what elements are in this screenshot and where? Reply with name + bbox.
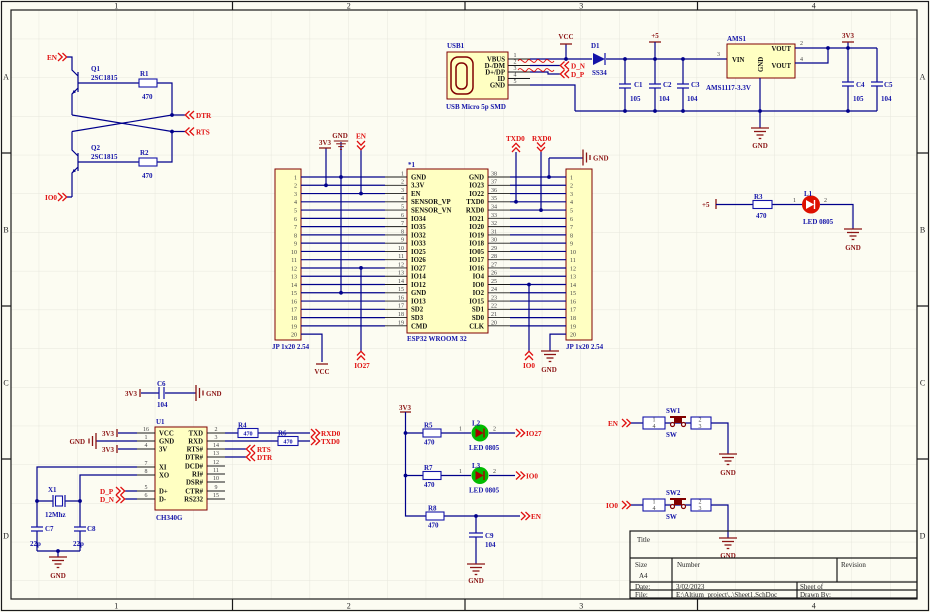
esp32-pin-name: SD2 xyxy=(411,307,424,314)
ams-vout1: VOUT xyxy=(771,46,791,53)
esp32-pin-name: SD0 xyxy=(472,315,485,322)
u1-pin-name: RXD xyxy=(188,438,203,445)
esp32-pin-number: 8 xyxy=(401,229,404,235)
drawn-by-label: Drawn By: xyxy=(800,591,831,599)
u1-pin-name: DCD# xyxy=(185,463,204,470)
resistor-r5[interactable] xyxy=(423,429,441,437)
esp32-pin-number: 28 xyxy=(491,254,497,260)
u1-pin-number: 15 xyxy=(213,493,219,499)
header-pin-number: 16 xyxy=(291,299,297,305)
v33-label: 3V3 xyxy=(399,404,412,412)
ams-pin3: 3 xyxy=(717,52,720,58)
sw-pin: 2 xyxy=(699,500,702,506)
esp32-pin-number: 35 xyxy=(491,196,497,202)
esp32-pin-number: 6 xyxy=(401,213,404,219)
port-rts[interactable]: RTS xyxy=(196,129,210,137)
esp32-pin-number: 27 xyxy=(491,262,497,268)
header-pin-number: 5 xyxy=(570,208,573,214)
schematic-canvas: 11223344AABBCCDD EN IO0 Q1 2SC1815 R1 47… xyxy=(0,0,930,612)
u1-pin-number: 11 xyxy=(213,468,219,474)
date-value: 3/02/2023 xyxy=(676,583,705,591)
header-pin-number: 1 xyxy=(294,175,297,181)
r4-ref: R4 xyxy=(238,422,247,430)
u1-pin-number: 3 xyxy=(215,435,218,441)
esp32-pin-name: GND xyxy=(469,174,484,181)
border-number-bottom: 1 xyxy=(114,602,118,611)
esp32-designator: *1 xyxy=(408,161,416,169)
esp32-pin-number: 11 xyxy=(398,254,404,260)
port-io0[interactable]: IO0 xyxy=(45,194,57,202)
c4-value: 105 xyxy=(853,95,864,103)
u1-pin-number: 14 xyxy=(213,443,219,449)
l1-part: LED 0805 xyxy=(803,218,834,226)
c7-value: 22p xyxy=(30,540,41,548)
header-pin-number: 12 xyxy=(570,266,576,272)
esp32-pin-name: IO20 xyxy=(469,224,484,231)
esp32-pin-name: IO4 xyxy=(473,274,485,281)
header-pin-number: 13 xyxy=(291,275,297,281)
r5-ref: R5 xyxy=(424,422,433,430)
header-pin-number: 16 xyxy=(570,299,576,305)
r2-ref: R2 xyxy=(140,149,149,157)
header-pin-number: 18 xyxy=(570,316,576,322)
v33-label: 3V3 xyxy=(102,430,115,438)
esp32-pin-number: 4 xyxy=(401,196,404,202)
esp32-pin-number: 21 xyxy=(491,312,497,318)
sw1-part: SW xyxy=(666,431,677,439)
border-letter-right: B xyxy=(920,226,925,235)
border-number-top: 1 xyxy=(114,2,118,11)
u1-pin-number: 6 xyxy=(145,493,148,499)
esp32-pin-number: 24 xyxy=(491,287,497,293)
u1-pin-number: 7 xyxy=(145,461,148,467)
esp32-pin-number: 1 xyxy=(401,171,404,177)
gnd-label: GND xyxy=(206,390,222,398)
ams-vout2: VOUT xyxy=(771,63,791,70)
border-number-bottom: 3 xyxy=(579,602,583,611)
v33-label: 3V3 xyxy=(842,32,855,40)
port-io27[interactable]: IO27 xyxy=(526,430,542,438)
port-rts[interactable]: RTS xyxy=(257,446,271,454)
c9-ref: C9 xyxy=(485,532,494,540)
border-letter-left: D xyxy=(3,532,9,541)
schematic-sheet: 11223344AABBCCDD EN IO0 Q1 2SC1815 R1 47… xyxy=(0,0,930,612)
esp32-pin-name: EN xyxy=(411,191,421,198)
esp32-pin-name: IO19 xyxy=(469,232,484,239)
l2-part: LED 0805 xyxy=(469,444,500,452)
header-pin-number: 20 xyxy=(570,333,576,339)
port-dn[interactable]: D_N xyxy=(100,496,115,504)
ams-part: AMS1117-3.3V xyxy=(706,84,751,92)
sw2-part: SW xyxy=(666,513,677,521)
esp32-pin-number: 13 xyxy=(398,271,404,277)
header-pin-number: 15 xyxy=(291,291,297,297)
u1-pin-number: 12 xyxy=(213,460,219,466)
r6-value: 470 xyxy=(283,439,292,446)
header-right-label: JP 1x20 2.54 xyxy=(566,343,604,351)
border-letter-left: A xyxy=(3,73,9,82)
l2-ref: L2 xyxy=(472,420,481,428)
header-pin-number: 20 xyxy=(291,333,297,339)
esp32-pin-number: 3 xyxy=(401,188,404,194)
esp32-pin-number: 33 xyxy=(491,213,497,219)
c7-ref: C7 xyxy=(45,525,54,533)
port-en[interactable]: EN xyxy=(356,133,367,141)
ams-pin2: 2 xyxy=(800,41,803,47)
c4-ref: C4 xyxy=(856,81,865,89)
port-dp[interactable]: D_P xyxy=(571,71,585,79)
esp32-pin-number: 20 xyxy=(491,320,497,326)
esp32-pin-number: 36 xyxy=(491,188,497,194)
u1-pin-number: 2 xyxy=(215,427,218,433)
esp32-pin-number: 26 xyxy=(491,271,497,277)
header-pin-number: 9 xyxy=(294,242,297,248)
header-pin-number: 2 xyxy=(294,184,297,190)
sw1-ref: SW1 xyxy=(666,407,681,415)
usb-pin-number: 4 xyxy=(514,73,517,79)
r1-value: 470 xyxy=(142,93,153,101)
esp32-pin-number: 37 xyxy=(491,180,497,186)
r4-value: 470 xyxy=(243,431,252,438)
header-pin-number: 7 xyxy=(294,225,297,231)
esp32-pin-name: IO15 xyxy=(469,298,484,305)
border-number-top: 2 xyxy=(347,2,351,11)
esp32-pin-number: 29 xyxy=(491,246,497,252)
size-label: Size xyxy=(635,561,647,569)
header-pin-number: 3 xyxy=(294,192,297,198)
resistor-r2[interactable] xyxy=(139,158,157,166)
esp32-pin-name: IO12 xyxy=(411,282,426,289)
port-en[interactable]: EN xyxy=(531,513,542,521)
esp32-pin-number: 9 xyxy=(401,238,404,244)
esp32-pin-name: IO2 xyxy=(473,290,485,297)
usb-part: USB Micro 5p SMD xyxy=(446,103,506,111)
header-pin-number: 10 xyxy=(570,250,576,256)
header-pin-number: 19 xyxy=(291,324,297,330)
esp32-pin-name: IO23 xyxy=(469,183,484,190)
gnd-label: GND xyxy=(50,572,66,580)
port-rxd0[interactable]: RXD0 xyxy=(321,430,341,438)
port-en[interactable]: EN xyxy=(47,54,58,62)
port-txd0[interactable]: TXD0 xyxy=(321,438,340,446)
esp32-pin-number: 2 xyxy=(401,180,404,186)
esp32-pin-name: IO35 xyxy=(411,224,426,231)
esp32-pin-name: IO0 xyxy=(473,282,485,289)
revision-label: Revision xyxy=(841,561,866,569)
d1-ref: D1 xyxy=(591,42,600,50)
esp32-pin-name: TXD0 xyxy=(466,199,484,206)
u1-pin-name: D+ xyxy=(159,488,168,495)
header-pin-number: 11 xyxy=(570,258,576,264)
sw2-ref: SW2 xyxy=(666,489,681,497)
gnd-label: GND xyxy=(468,577,484,585)
ams-ref: AMS1 xyxy=(727,35,747,43)
border-letter-left: C xyxy=(3,379,8,388)
u1-pin-name: XO xyxy=(159,472,169,479)
esp32-part: ESP32 WROOM 32 xyxy=(407,335,467,343)
border-number-top: 4 xyxy=(812,2,816,11)
esp32-pin-name: IO34 xyxy=(411,216,426,223)
d1-part: SS34 xyxy=(592,69,607,77)
esp32-pin-name: SD3 xyxy=(411,315,424,322)
header-left[interactable] xyxy=(275,169,301,340)
led-pin2: 2 xyxy=(493,469,496,475)
port-dp[interactable]: D_P xyxy=(100,488,114,496)
header-pin-number: 6 xyxy=(570,217,573,223)
u1-pin-number: 10 xyxy=(213,476,219,482)
u1-pin-number: 5 xyxy=(145,485,148,491)
header-left-label: JP 1x20 2.54 xyxy=(272,343,310,351)
header-pin-number: 13 xyxy=(570,275,576,281)
header-pin-number: 4 xyxy=(570,200,573,206)
sw-pin: 1 xyxy=(653,500,656,506)
header-pin-number: 14 xyxy=(570,283,576,289)
c2-value: 104 xyxy=(659,95,670,103)
crystal-x1[interactable] xyxy=(56,496,63,506)
esp32-pin-name: CMD xyxy=(411,323,427,330)
esp32-pin-name: IO21 xyxy=(469,216,484,223)
u1-pin-number: 9 xyxy=(215,485,218,491)
port-io0[interactable]: IO0 xyxy=(526,473,538,481)
esp32-pin-number: 7 xyxy=(401,221,404,227)
esp32-pin-number: 14 xyxy=(398,279,404,285)
led-pin2: 2 xyxy=(824,198,827,204)
vcc-label: VCC xyxy=(314,368,329,376)
esp32-pin-number: 38 xyxy=(491,171,497,177)
u1-pin-name: DTR# xyxy=(185,454,203,461)
port-en[interactable]: EN xyxy=(608,420,619,428)
header-pin-number: 15 xyxy=(570,291,576,297)
ams-vin: VIN xyxy=(732,57,745,64)
esp32-pin-number: 5 xyxy=(401,204,404,210)
header-pin-number: 12 xyxy=(291,266,297,272)
u1-part: CH340G xyxy=(156,514,183,522)
header-pin-number: 18 xyxy=(291,316,297,322)
border-letter-right: D xyxy=(920,532,926,541)
l1-ref: L1 xyxy=(804,190,813,198)
file-value: E:\Altium_project\..\Sheet1.SchDoc xyxy=(676,591,777,599)
esp32-pin-number: 17 xyxy=(398,304,404,310)
u1-pin-name: RI# xyxy=(192,471,204,478)
esp32-pin-name: IO27 xyxy=(411,265,426,272)
c8-ref: C8 xyxy=(87,525,96,533)
c2-ref: C2 xyxy=(663,81,672,89)
esp32-pin-number: 18 xyxy=(398,312,404,318)
esp32-pin-number: 22 xyxy=(491,304,497,310)
c5-ref: C5 xyxy=(884,81,893,89)
gnd-label: GND xyxy=(845,244,861,252)
x1-ref: X1 xyxy=(48,486,57,494)
header-pin-number: 5 xyxy=(294,208,297,214)
c3-value: 104 xyxy=(687,95,698,103)
usb-pin-number: 5 xyxy=(514,79,517,85)
gnd-label: GND xyxy=(752,142,768,150)
q1-part: 2SC1815 xyxy=(91,74,118,82)
c6-value: 104 xyxy=(157,401,168,409)
q1-ref: Q1 xyxy=(91,65,100,73)
header-pin-number: 1 xyxy=(570,175,573,181)
l3-part: LED 0805 xyxy=(469,487,500,495)
esp32-pin-name: IO26 xyxy=(411,257,426,264)
u1-pin-name: XI xyxy=(159,464,167,471)
esp32-pin-number: 30 xyxy=(491,238,497,244)
esp32-pin-number: 19 xyxy=(398,320,404,326)
gnd-label: GND xyxy=(69,438,85,446)
c1-ref: C1 xyxy=(634,81,643,89)
u1-pin-number: 4 xyxy=(145,443,148,449)
esp32-pin-number: 12 xyxy=(398,262,404,268)
header-pin-number: 9 xyxy=(570,242,573,248)
u1-pin-name: D- xyxy=(159,496,167,503)
ams-gnd: GND xyxy=(758,57,765,72)
x1-part: 12Mhz xyxy=(45,511,66,519)
gnd-label: GND xyxy=(593,155,609,163)
border-number-bottom: 4 xyxy=(812,602,816,611)
size-value: A4 xyxy=(639,572,648,580)
title-label: Title xyxy=(637,536,650,544)
r2-value: 470 xyxy=(142,172,153,180)
esp32-pin-name: IO25 xyxy=(411,249,426,256)
esp32-pin-name: IO33 xyxy=(411,241,426,248)
port-dn[interactable]: D_N xyxy=(571,63,586,71)
usb-pin-number: 1 xyxy=(514,53,517,59)
header-pin-number: 7 xyxy=(570,225,573,231)
led-pin1: 1 xyxy=(459,469,462,475)
l3-ref: L3 xyxy=(472,462,481,470)
port-io27[interactable]: IO27 xyxy=(354,362,370,370)
plus5-label: +5 xyxy=(702,201,710,209)
border-letter-right: A xyxy=(920,73,926,82)
header-pin-number: 4 xyxy=(294,200,297,206)
port-dtr[interactable]: DTR xyxy=(196,112,212,120)
esp32-pin-name: IO13 xyxy=(411,298,426,305)
header-pin-number: 14 xyxy=(291,283,297,289)
esp32-pin-name: SENSOR_VP xyxy=(411,199,451,206)
esp32-pin-name: GND xyxy=(411,290,426,297)
r3-value: 470 xyxy=(756,212,767,220)
sw-pin: 4 xyxy=(653,424,656,430)
c3-ref: C3 xyxy=(691,81,700,89)
esp32-pin-name: IO05 xyxy=(469,249,484,256)
esp32-pin-name: IO32 xyxy=(411,232,426,239)
header-pin-number: 6 xyxy=(294,217,297,223)
esp32-pin-name: CLK xyxy=(469,323,484,330)
u1-pin-name: DSR# xyxy=(186,479,204,486)
vcc-label: VCC xyxy=(558,33,573,41)
resistor-r7[interactable] xyxy=(423,472,441,480)
led-pin2: 2 xyxy=(493,427,496,433)
u1-pin-name: 3V xyxy=(159,446,167,453)
r3-ref: R3 xyxy=(754,193,763,201)
port-io0[interactable]: IO0 xyxy=(606,502,618,510)
u1-pin-name: TXD xyxy=(189,430,203,437)
header-pin-number: 17 xyxy=(291,308,297,314)
header-pin-number: 11 xyxy=(291,258,297,264)
esp32-pin-number: 23 xyxy=(491,295,497,301)
r6-ref: R6 xyxy=(278,430,287,438)
sheet-label: Sheet of xyxy=(800,583,824,591)
port-dtr[interactable]: DTR xyxy=(257,454,273,462)
u1-pin-name: CTR# xyxy=(185,488,203,495)
esp32-pin-name: IO18 xyxy=(469,241,484,248)
c8-value: 22p xyxy=(73,540,84,548)
c1-value: 105 xyxy=(630,95,641,103)
r5-value: 470 xyxy=(424,439,435,447)
esp32-pin-name: IO22 xyxy=(469,191,484,198)
resistor-r1[interactable] xyxy=(139,79,157,87)
r8-value: 470 xyxy=(428,522,439,530)
u1-pin-name: GND xyxy=(159,438,174,445)
u1-pin-name: VCC xyxy=(159,430,174,437)
gnd-label: GND xyxy=(720,552,736,560)
usb-pin-number: 3 xyxy=(514,66,517,72)
esp32-pin-number: 32 xyxy=(491,221,497,227)
c9-value: 104 xyxy=(485,541,496,549)
border-number-top: 3 xyxy=(579,2,583,11)
header-pin-number: 19 xyxy=(570,324,576,330)
header-pin-number: 8 xyxy=(294,233,297,239)
number-label: Number xyxy=(677,561,701,569)
gnd-label: GND xyxy=(332,132,348,140)
esp32-pin-name: IO14 xyxy=(411,274,426,281)
led-pin1: 1 xyxy=(793,198,796,204)
plus5-label: +5 xyxy=(651,32,659,40)
usb-ref: USB1 xyxy=(447,42,465,50)
ams-pin4: 4 xyxy=(800,57,803,63)
esp32-pin-number: 25 xyxy=(491,279,497,285)
date-label: Date: xyxy=(635,583,650,591)
led-pin1: 1 xyxy=(459,427,462,433)
r8-ref: R8 xyxy=(428,505,437,513)
gnd-label: GND xyxy=(541,366,557,374)
border-letter-right: C xyxy=(920,379,925,388)
esp32-pin-number: 34 xyxy=(491,204,497,210)
border-number-bottom: 2 xyxy=(347,602,351,611)
resistor-r8[interactable] xyxy=(426,512,444,520)
sw-pin: 3 xyxy=(699,424,702,430)
esp32-pin-name: SD1 xyxy=(472,307,485,314)
header-pin-number: 8 xyxy=(570,233,573,239)
q2-part: 2SC1815 xyxy=(91,153,118,161)
esp32-pin-number: 10 xyxy=(398,246,404,252)
esp32-pin-number: 16 xyxy=(398,295,404,301)
header-pin-number: 17 xyxy=(570,308,576,314)
port-txd0[interactable]: TXD0 xyxy=(506,135,525,143)
u1-pin-number: 13 xyxy=(213,451,219,457)
header-pin-number: 2 xyxy=(570,184,573,190)
q2-ref: Q2 xyxy=(91,144,100,152)
port-rxd0[interactable]: RXD0 xyxy=(532,135,552,143)
port-io0[interactable]: IO0 xyxy=(523,362,535,370)
u1-pin-number: 16 xyxy=(143,427,149,433)
r7-value: 470 xyxy=(424,481,435,489)
gnd-label: GND xyxy=(720,469,736,477)
usb-pin-name: GND xyxy=(490,82,505,89)
resistor-r3[interactable] xyxy=(753,201,772,209)
esp32-pin-name: IO17 xyxy=(469,257,484,264)
u1-ref: U1 xyxy=(156,418,165,426)
border-letter-left: B xyxy=(3,226,8,235)
sw-pin: 3 xyxy=(699,506,702,512)
v33-label: 3V3 xyxy=(125,390,138,398)
c5-value: 104 xyxy=(881,95,892,103)
header-pin-number: 3 xyxy=(570,192,573,198)
sw-pin: 1 xyxy=(653,418,656,424)
usb-pin-number: 2 xyxy=(514,60,517,66)
sw-pin: 4 xyxy=(653,506,656,512)
u1-pin-number: 1 xyxy=(145,435,148,441)
c6-ref: C6 xyxy=(157,380,166,388)
